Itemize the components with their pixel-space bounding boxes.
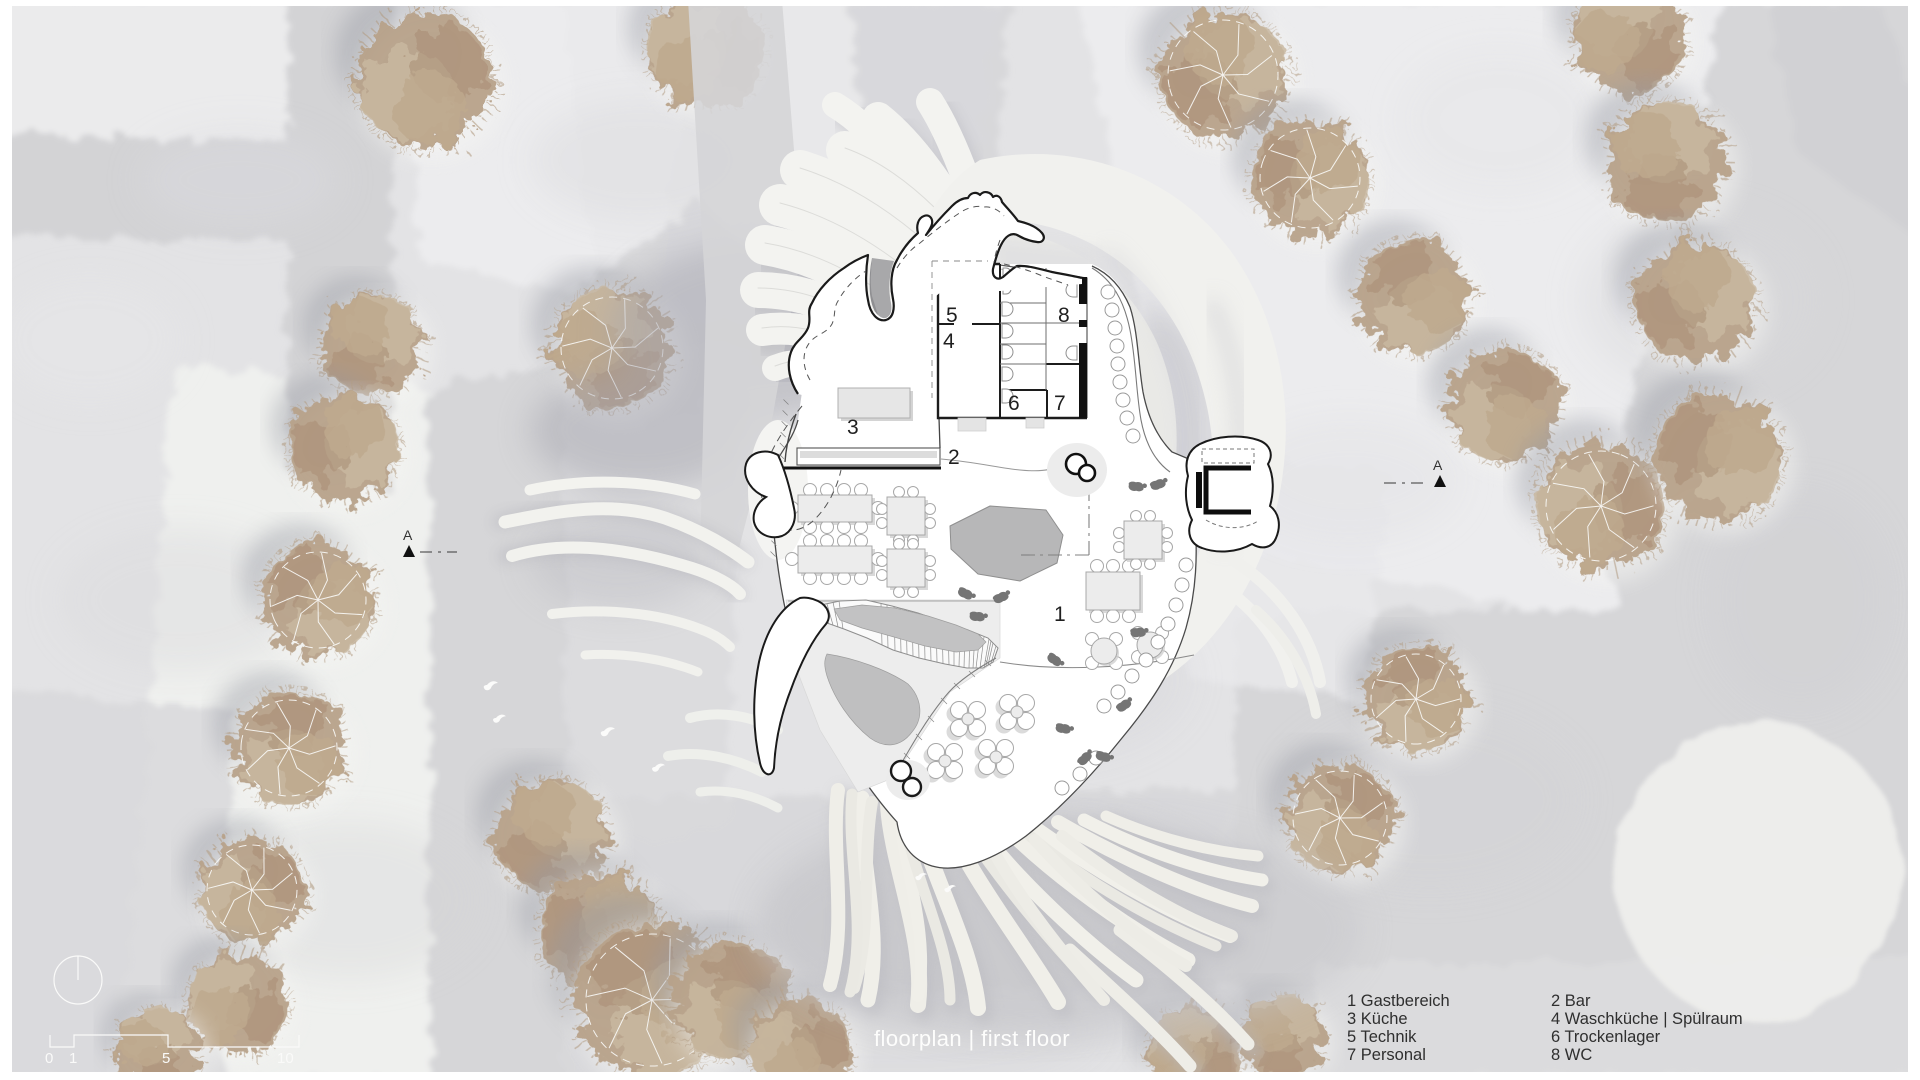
svg-text:5: 5 — [946, 304, 958, 327]
svg-text:8 WC: 8 WC — [1551, 1046, 1592, 1064]
svg-text:1: 1 — [69, 1050, 77, 1067]
svg-text:1: 1 — [1054, 603, 1066, 626]
svg-text:3: 3 — [847, 416, 859, 439]
svg-text:3 Küche: 3 Küche — [1347, 1010, 1408, 1028]
svg-text:2: 2 — [948, 446, 960, 469]
svg-text:A: A — [403, 527, 413, 543]
svg-text:6: 6 — [1008, 392, 1020, 415]
svg-text:5: 5 — [162, 1050, 170, 1067]
svg-text:A: A — [1433, 457, 1443, 473]
svg-text:4: 4 — [943, 330, 955, 353]
svg-text:4 Waschküche | Spülraum: 4 Waschküche | Spülraum — [1551, 1010, 1743, 1028]
svg-text:0: 0 — [45, 1050, 53, 1067]
svg-text:floorplan | first floor: floorplan | first floor — [874, 1026, 1070, 1051]
svg-text:7 Personal: 7 Personal — [1347, 1046, 1426, 1064]
svg-text:6 Trockenlager: 6 Trockenlager — [1551, 1028, 1661, 1046]
svg-text:8: 8 — [1058, 304, 1070, 327]
svg-text:7: 7 — [1054, 392, 1066, 415]
svg-text:2 Bar: 2 Bar — [1551, 992, 1591, 1010]
svg-text:5 Technik: 5 Technik — [1347, 1028, 1417, 1046]
svg-text:1 Gastbereich: 1 Gastbereich — [1347, 992, 1450, 1010]
svg-text:10: 10 — [277, 1050, 294, 1067]
